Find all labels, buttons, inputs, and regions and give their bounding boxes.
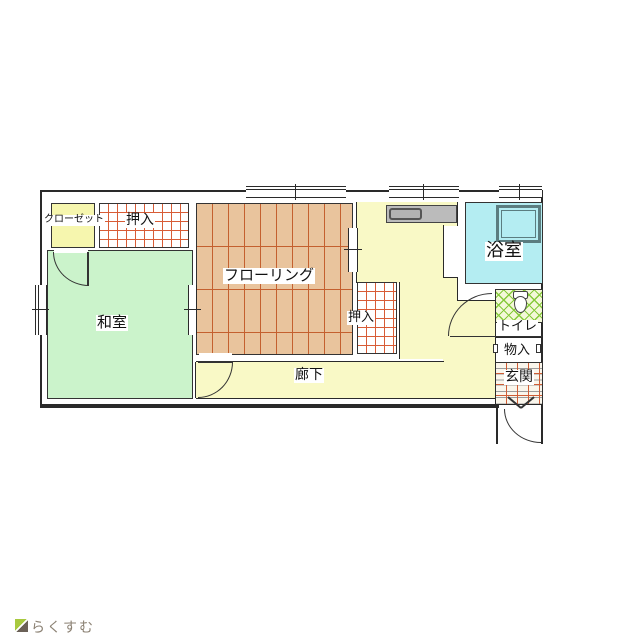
window-tick (344, 249, 362, 250)
wall-line (443, 225, 444, 278)
window-bath-top (499, 189, 542, 198)
entrance-porch-wall-right (541, 405, 543, 444)
wall-line (399, 282, 400, 359)
label-bathroom: 浴室 (485, 242, 523, 261)
window-kitchen-top (389, 189, 459, 198)
bottom-wall (40, 404, 499, 408)
sliding-door-flooring-kitchen (348, 228, 358, 272)
label-toilet: トイレ (497, 320, 538, 334)
window-outer-line (246, 186, 346, 187)
window-tick (184, 309, 201, 310)
wall-line (195, 362, 196, 398)
label-entrance: 玄関 (504, 370, 534, 385)
wall-line (495, 337, 543, 338)
logo-text: らくすむ (31, 617, 95, 637)
window-tick (32, 309, 49, 310)
label-storage: 物入 (503, 344, 531, 358)
wall-line (443, 277, 458, 278)
wall-line (457, 202, 458, 226)
label-flooring: フローリング (223, 268, 315, 284)
wall-line (196, 398, 496, 399)
window-flooring-top (246, 189, 346, 198)
sliding-door-washitsu-flooring (188, 285, 197, 335)
corridor-floor (196, 362, 496, 398)
door-arc-entrance (504, 409, 541, 443)
wall-line (457, 277, 458, 301)
label-oshiire-right: 押入 (347, 311, 375, 325)
entrance-porch-wall-left (496, 405, 498, 444)
wall-line (196, 361, 444, 362)
storage-door-jamb (536, 344, 541, 353)
bathtub (496, 205, 541, 243)
corridor-floor (399, 283, 444, 359)
door-leaf (450, 336, 542, 337)
bathtub-inner (501, 210, 536, 238)
label-washitsu: 和室 (96, 315, 128, 331)
logo-house-icon (15, 619, 28, 632)
label-corridor: 廊下 (294, 368, 324, 383)
door-leaf (198, 361, 233, 363)
window-outer-line (389, 186, 459, 187)
storage-door-jamb (493, 344, 498, 353)
kitchen-sink (389, 208, 422, 220)
door-leaf (87, 252, 89, 286)
window-tick (423, 184, 424, 200)
room-closet (51, 203, 95, 248)
door-opening (199, 353, 232, 357)
window-washitsu-left (38, 285, 47, 335)
label-oshiire-top: 押入 (125, 213, 155, 228)
window-tick (295, 184, 296, 200)
window-outer-line (35, 285, 36, 335)
label-closet: クローゼット (43, 215, 105, 226)
window-tick (519, 184, 520, 200)
floor-plan-canvas: クローゼット 押入 フローリング 和室 押入 廊下 浴室 トイレ 物入 玄関 ら… (0, 0, 640, 640)
window-outer-line (499, 186, 542, 187)
